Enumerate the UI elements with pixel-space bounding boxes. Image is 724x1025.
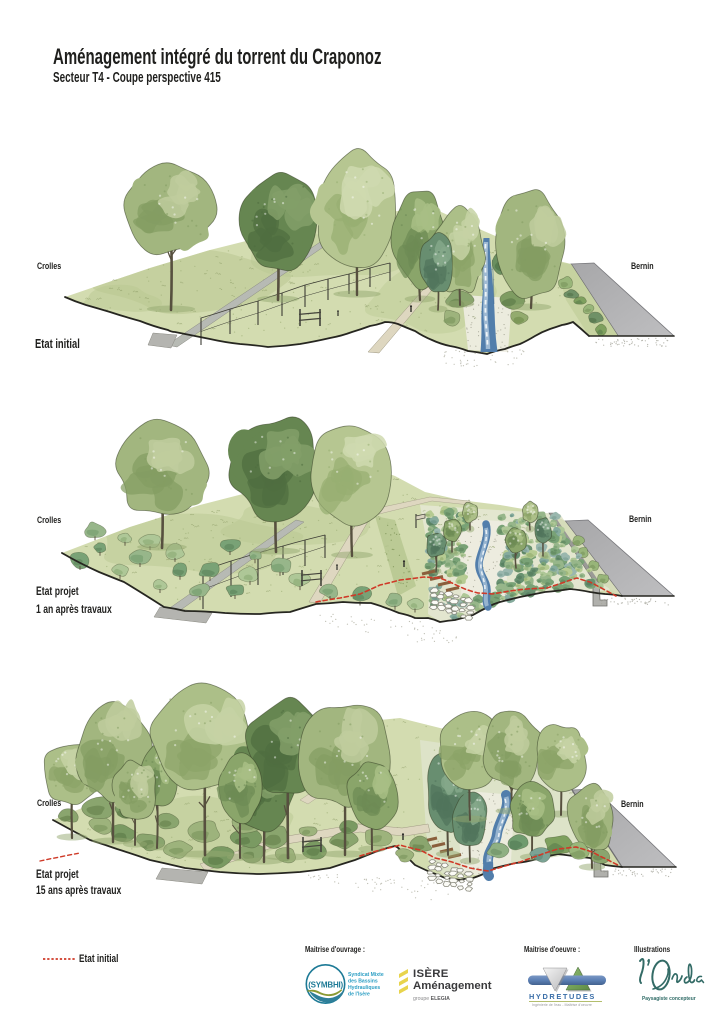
svg-text:Hydrauliques: Hydrauliques — [348, 985, 380, 991]
svg-text:des Bassins: des Bassins — [348, 979, 378, 985]
svg-text:(SYMBHI): (SYMBHI) — [308, 981, 343, 990]
svg-text:Ingénierie de l'eau - Maîtrise: Ingénierie de l'eau - Maîtrise d'oeuvre — [532, 1003, 592, 1007]
svg-text:de l'Isère: de l'Isère — [348, 992, 370, 998]
svg-text:Aménagement: Aménagement — [413, 980, 492, 992]
svg-text:groupe ELEGIA: groupe ELEGIA — [413, 996, 450, 1002]
svg-text:HYDRETUDES: HYDRETUDES — [529, 992, 596, 1001]
svg-text:ISÈRE: ISÈRE — [413, 967, 449, 980]
svg-text:Syndicat Mixte: Syndicat Mixte — [348, 972, 384, 978]
